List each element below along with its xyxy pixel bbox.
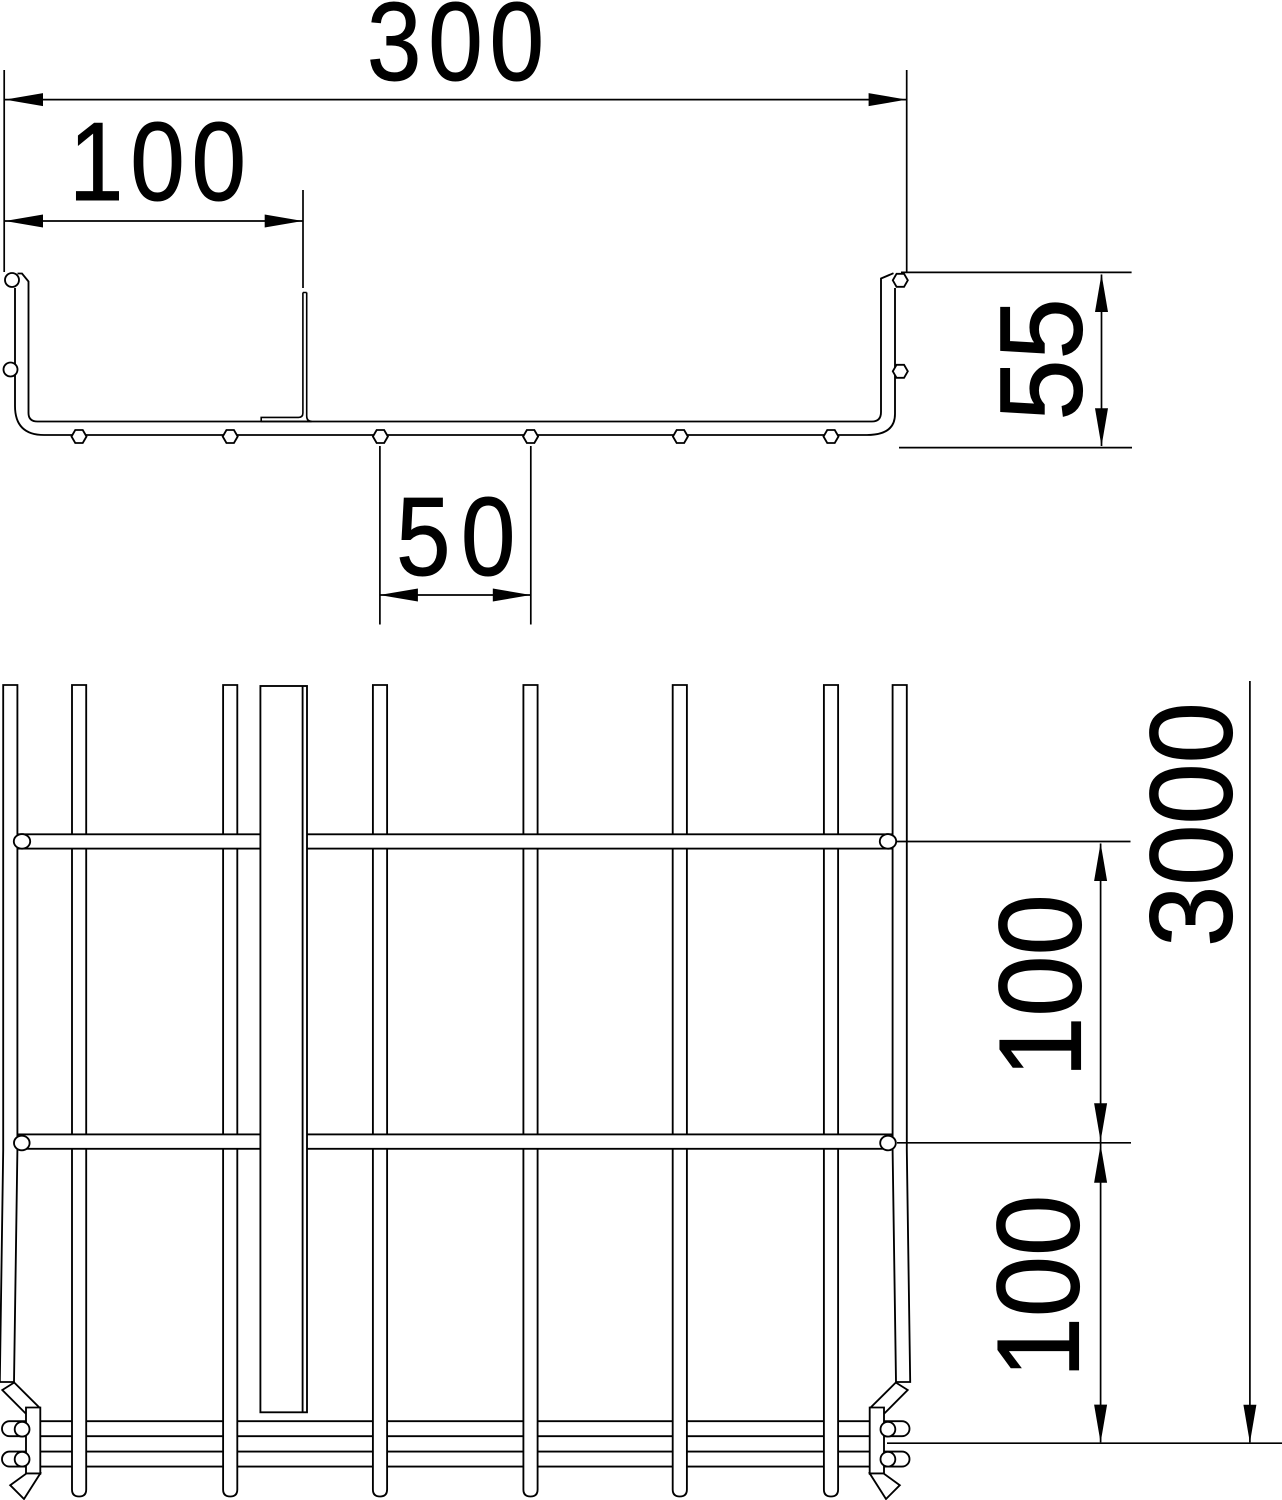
svg-text:50: 50: [396, 475, 526, 599]
svg-text:100: 100: [976, 894, 1107, 1078]
svg-text:3000: 3000: [1127, 702, 1258, 947]
svg-text:55: 55: [977, 298, 1108, 420]
svg-text:300: 300: [367, 0, 551, 104]
svg-text:100: 100: [69, 100, 253, 224]
svg-text:100: 100: [974, 1195, 1105, 1379]
